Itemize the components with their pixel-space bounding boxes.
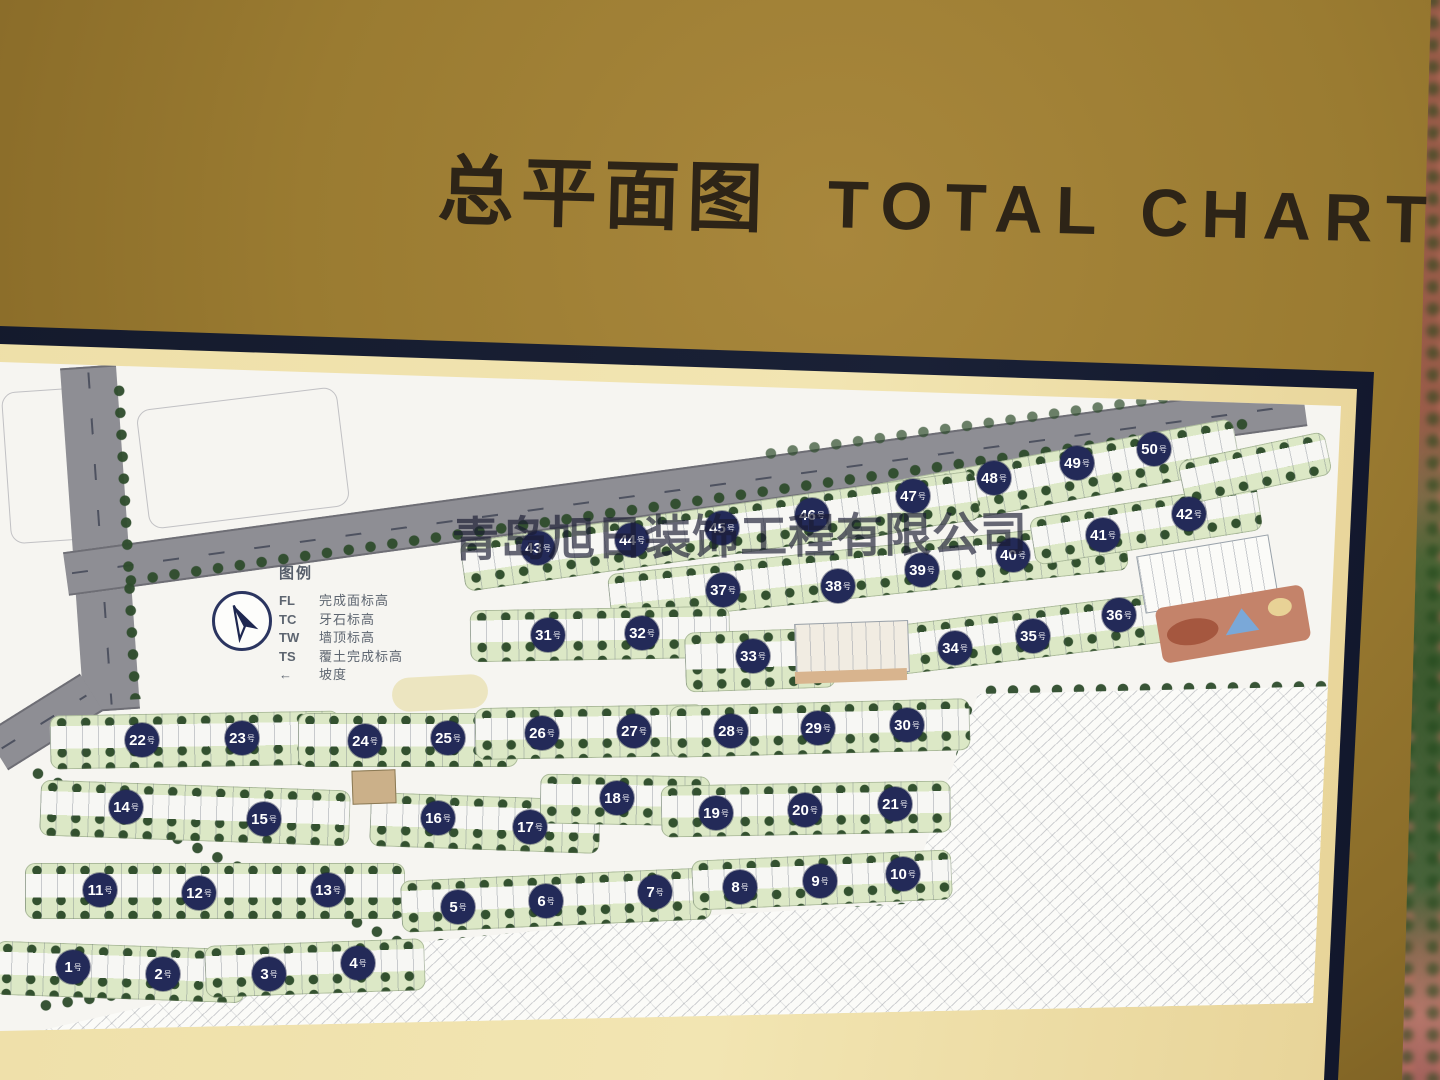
building-number-4: 4号 <box>341 946 375 980</box>
building-number-14: 14号 <box>109 790 143 824</box>
building-number-21: 21号 <box>878 787 912 821</box>
building-number-16: 16号 <box>421 801 455 835</box>
building-number-15: 15号 <box>247 802 281 836</box>
legend-entries: FL完成面标高TC牙石标高TW墙顶标高TS覆土完成标高←坡度 <box>279 592 403 685</box>
building-number-5: 5号 <box>441 890 475 924</box>
running-track <box>1165 615 1221 649</box>
legend-title: 图例 <box>279 562 403 583</box>
legend-entry: FL完成面标高 <box>279 592 403 611</box>
landscape-lawn <box>391 674 489 713</box>
building-number-34: 34号 <box>938 631 972 665</box>
board-title: 总平面图 TOTAL CHART <box>437 129 1440 265</box>
building-number-10: 10号 <box>886 857 920 891</box>
building-number-30: 30号 <box>890 708 924 742</box>
building-number-48: 48号 <box>977 461 1011 495</box>
parcel-outline <box>135 386 350 530</box>
building-number-41: 41号 <box>1086 518 1120 552</box>
building-number-2: 2号 <box>146 957 180 991</box>
building-number-49: 49号 <box>1060 446 1094 480</box>
building-number-42: 42号 <box>1172 497 1206 531</box>
building-number-20: 20号 <box>788 793 822 827</box>
clubhouse-building <box>351 769 396 805</box>
sand-pit <box>1267 596 1294 618</box>
building-number-11: 11号 <box>83 873 117 907</box>
legend-entry: TW墙顶标高 <box>279 629 403 648</box>
building-number-6: 6号 <box>529 884 563 918</box>
legend-entry: ←坡度 <box>279 666 403 685</box>
building-number-27: 27号 <box>617 714 651 748</box>
building-number-28: 28号 <box>714 714 748 748</box>
building-number-1: 1号 <box>56 950 90 984</box>
building-number-32: 32号 <box>625 616 659 650</box>
building-number-3: 3号 <box>252 957 286 991</box>
building-number-24: 24号 <box>348 724 382 758</box>
building-number-35: 35号 <box>1016 619 1050 653</box>
legend: 图例 FL完成面标高TC牙石标高TW墙顶标高TS覆土完成标高←坡度 <box>279 562 403 685</box>
building-number-19: 19号 <box>699 796 733 830</box>
building-number-50: 50号 <box>1137 432 1171 466</box>
building-number-26: 26号 <box>525 716 559 750</box>
slope-arrow-icon: ← <box>279 666 319 685</box>
building-number-22: 22号 <box>125 723 159 757</box>
building-number-25: 25号 <box>431 721 465 755</box>
building-number-33: 33号 <box>736 639 770 673</box>
company-watermark: 青岛旭日装饰工程有限公司 <box>452 495 1029 570</box>
legend-entry: TC牙石标高 <box>279 611 403 630</box>
building-number-12: 12号 <box>182 876 216 910</box>
building-number-9: 9号 <box>803 864 837 898</box>
north-arrow-compass <box>212 591 272 651</box>
building-number-13: 13号 <box>311 873 345 907</box>
building-number-23: 23号 <box>225 721 259 755</box>
building-number-36: 36号 <box>1102 598 1136 632</box>
building-number-37: 37号 <box>706 573 740 607</box>
legend-entry: TS覆土完成标高 <box>279 648 403 667</box>
title-chinese: 总平面图 <box>437 129 772 248</box>
building-row <box>39 780 351 847</box>
sign-board-photo: { "title": { "zh": "总平面图", "en": "TOTAL … <box>0 0 1440 1080</box>
building-number-7: 7号 <box>638 875 672 909</box>
building-number-31: 31号 <box>531 618 565 652</box>
north-arrow-icon <box>212 591 272 651</box>
building-number-18: 18号 <box>600 781 634 815</box>
building-row <box>204 938 426 998</box>
building-row <box>50 710 341 769</box>
building-number-38: 38号 <box>821 569 855 603</box>
title-english: TOTAL CHART <box>827 166 1440 259</box>
commercial-parking-strip <box>795 668 907 684</box>
pool-shape <box>1222 606 1259 635</box>
building-number-29: 29号 <box>801 711 835 745</box>
building-number-8: 8号 <box>723 870 757 904</box>
building-number-17: 17号 <box>513 810 547 844</box>
